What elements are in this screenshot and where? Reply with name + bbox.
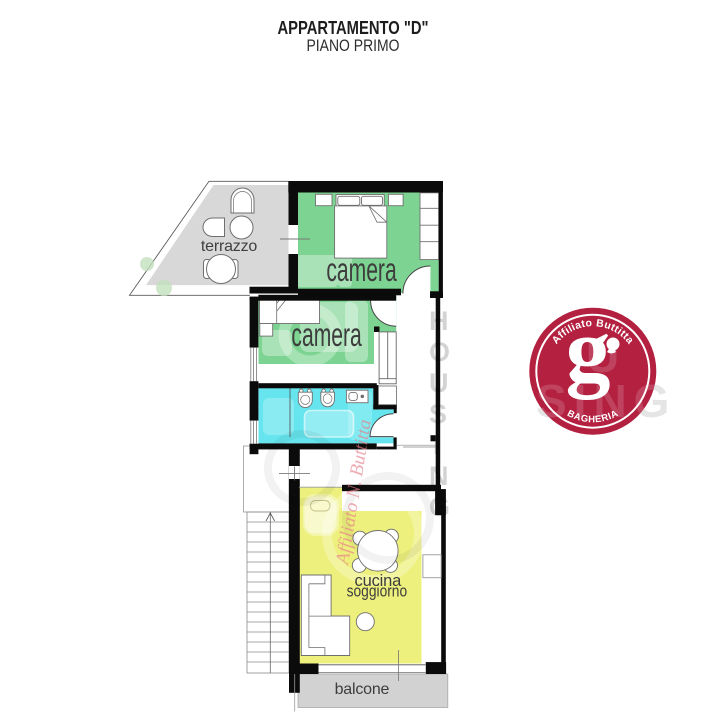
svg-text:terrazzo: terrazzo [201,238,257,255]
svg-text:N: N [429,461,449,491]
svg-text:soggiorno: soggiorno [347,583,408,601]
svg-text:O: O [429,337,450,367]
svg-text:APPARTAMENTO "D": APPARTAMENTO "D" [278,18,429,38]
svg-text:U: U [429,368,449,398]
svg-text:I: I [433,430,441,460]
svg-text:S: S [429,399,447,429]
svg-text:camera: camera [326,251,397,288]
svg-text:camera: camera [291,316,362,353]
svg-text:balcone: balcone [335,681,390,698]
svg-text:PIANO PRIMO: PIANO PRIMO [307,37,400,55]
svg-text:g: g [566,301,611,400]
svg-text:H: H [429,306,449,336]
